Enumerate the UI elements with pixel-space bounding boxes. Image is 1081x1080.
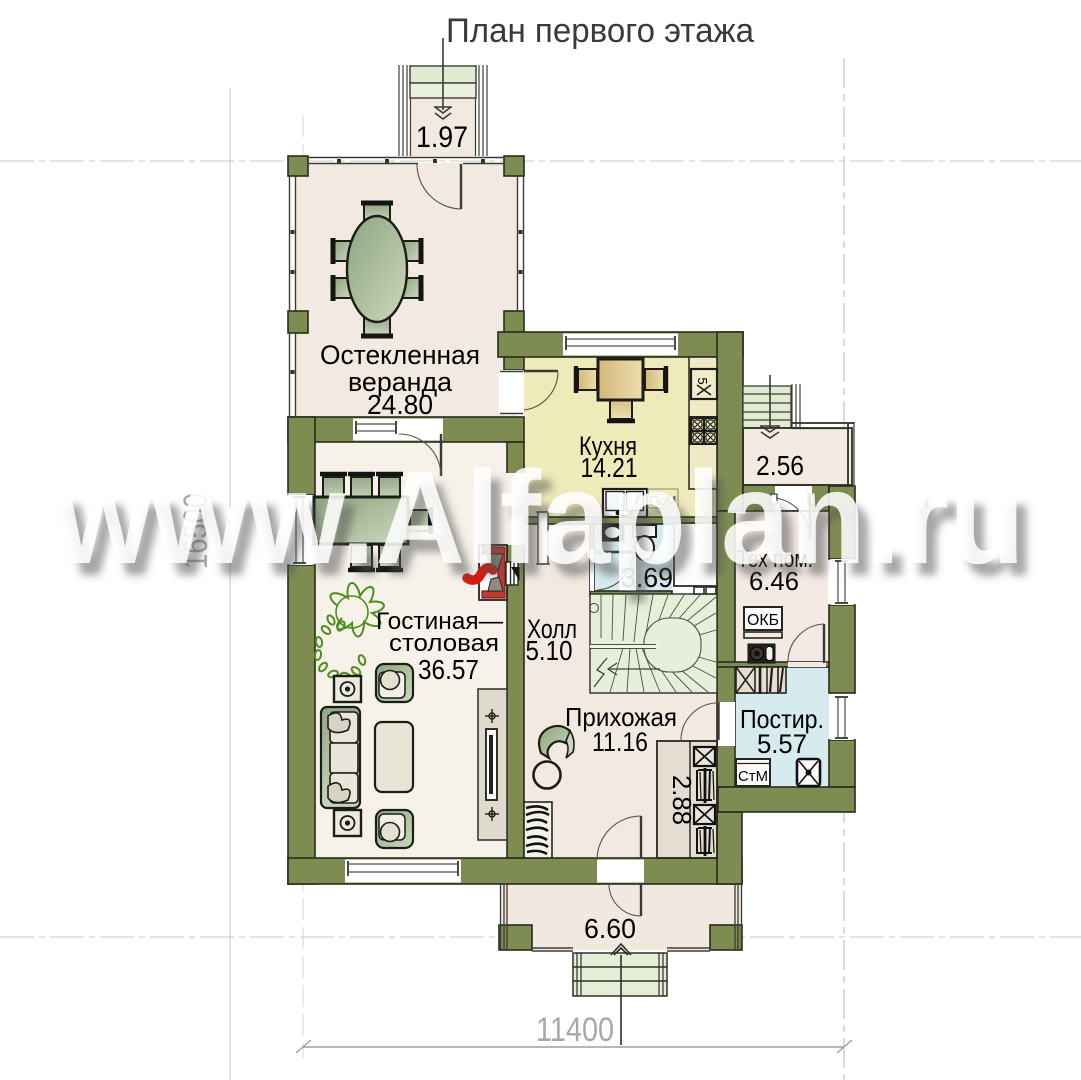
svg-text:11400: 11400 (536, 1011, 614, 1049)
svg-text:Остекленная: Остекленная (320, 340, 480, 370)
svg-text:столовая: столовая (389, 630, 499, 657)
svg-text:6.60: 6.60 (584, 913, 636, 944)
svg-text:11.16: 11.16 (592, 727, 648, 757)
svg-text:План первого этажа: План первого этажа (446, 12, 754, 50)
svg-text:5: 5 (695, 377, 710, 384)
svg-text:2.88: 2.88 (667, 775, 697, 825)
svg-text:www.Alfaplan.ru: www.Alfaplan.ru (54, 444, 1025, 591)
svg-text:24.80: 24.80 (367, 389, 433, 420)
svg-text:5.10: 5.10 (526, 635, 573, 666)
svg-text:5.57: 5.57 (757, 729, 807, 759)
svg-text:ОКБ: ОКБ (747, 612, 779, 629)
svg-text:1.97: 1.97 (416, 121, 468, 154)
svg-text:СтМ: СтМ (738, 768, 768, 785)
svg-text:36.57: 36.57 (418, 654, 479, 685)
